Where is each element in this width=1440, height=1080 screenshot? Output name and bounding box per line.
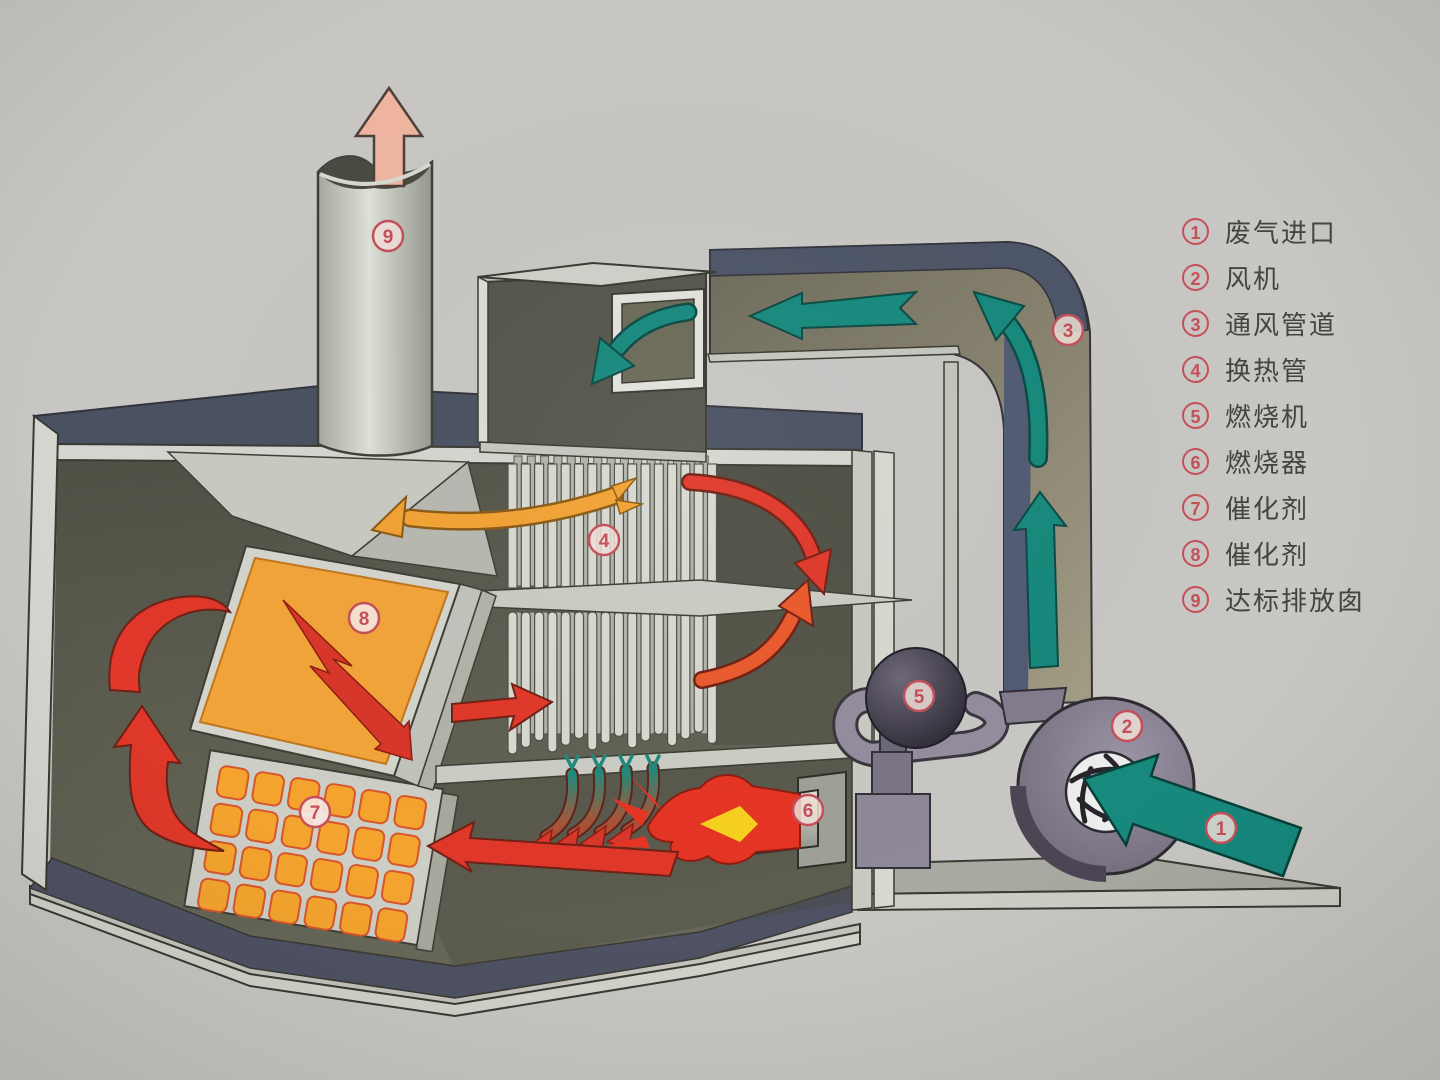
legend-item-5: 5 燃烧机	[1182, 400, 1365, 431]
legend-label-5: 燃烧机	[1225, 397, 1309, 434]
diagram-page: 9 3 4 8 5 2 7 6	[0, 0, 1440, 1080]
legend-label-1: 废气进口	[1225, 213, 1337, 250]
legend-item-4: 4 换热管	[1182, 354, 1365, 385]
legend: 1 废气进口 2 风机 3 通风管道 4 换热管 5 燃烧机 6 燃烧器 7 催…	[1182, 216, 1365, 615]
legend-label-4: 换热管	[1225, 351, 1309, 388]
legend-label-3: 通风管道	[1225, 305, 1337, 342]
legend-label-6: 燃烧器	[1225, 443, 1309, 480]
legend-label-9: 达标排放囱	[1225, 581, 1365, 618]
legend-badge-2: 2	[1182, 264, 1209, 291]
legend-label-7: 催化剂	[1225, 489, 1309, 526]
legend-item-6: 6 燃烧器	[1182, 446, 1365, 477]
legend-item-1: 1 废气进口	[1182, 216, 1365, 247]
legend-badge-7: 7	[1182, 494, 1209, 521]
legend-badge-3: 3	[1182, 310, 1209, 337]
legend-item-2: 2 风机	[1182, 262, 1365, 293]
legend-badge-9: 9	[1182, 586, 1209, 613]
legend-item-8: 8 催化剂	[1182, 538, 1365, 569]
legend-label-8: 催化剂	[1225, 535, 1309, 572]
legend-badge-5: 5	[1182, 402, 1209, 429]
legend-item-9: 9 达标排放囱	[1182, 584, 1365, 615]
legend-item-3: 3 通风管道	[1182, 308, 1365, 339]
legend-badge-1: 1	[1182, 218, 1209, 245]
legend-item-7: 7 催化剂	[1182, 492, 1365, 523]
legend-label-2: 风机	[1225, 259, 1281, 296]
legend-badge-8: 8	[1182, 540, 1209, 567]
legend-badge-4: 4	[1182, 356, 1209, 383]
legend-badge-6: 6	[1182, 448, 1209, 475]
